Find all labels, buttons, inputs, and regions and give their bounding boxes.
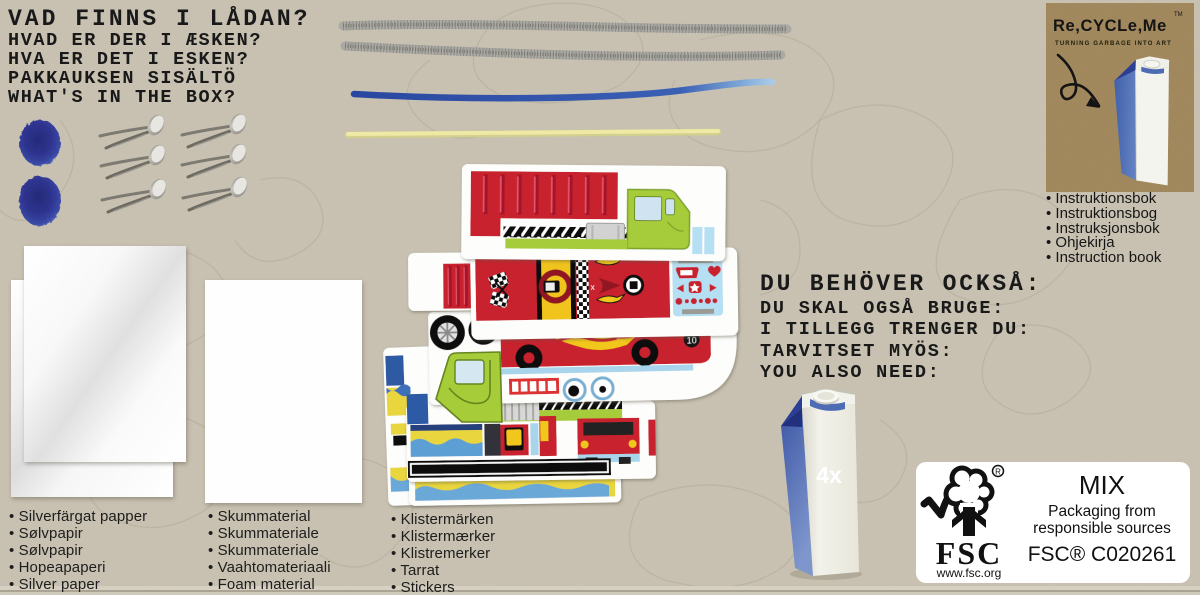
svg-text:responsible sources: responsible sources (1033, 520, 1171, 537)
svg-text:www.fsc.org: www.fsc.org (936, 566, 1002, 580)
svg-text:4x: 4x (816, 462, 842, 488)
svg-text:TURNING GARBAGE INTO ART: TURNING GARBAGE INTO ART (1055, 41, 1172, 47)
svg-text:MIX: MIX (1079, 470, 1125, 500)
svg-text:FSC® C020261: FSC® C020261 (1028, 543, 1177, 566)
svg-text:Re,CYCLe,Me: Re,CYCLe,Me (1053, 17, 1167, 35)
svg-text:x: x (591, 283, 595, 292)
svg-text:TM: TM (1174, 12, 1183, 18)
svg-text:R: R (995, 468, 1001, 477)
svg-text:Packaging from: Packaging from (1048, 503, 1156, 520)
svg-text:10: 10 (687, 335, 697, 345)
